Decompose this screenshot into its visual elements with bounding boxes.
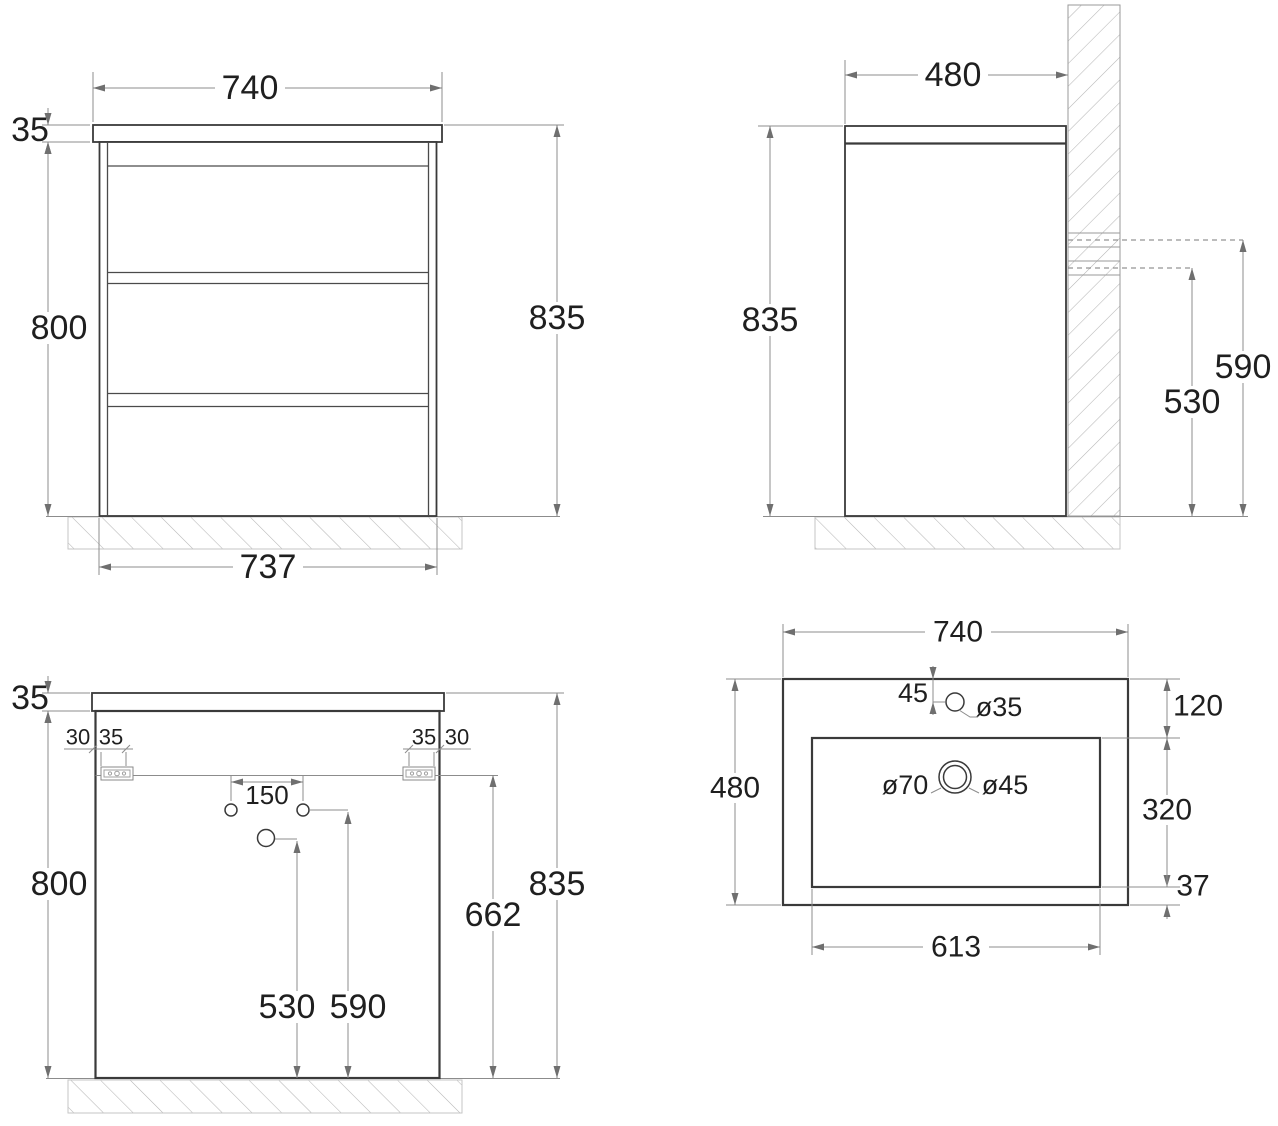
side-dim-drain-height: 530 bbox=[1159, 268, 1225, 516]
back-dim-30-left-label: 30 bbox=[66, 725, 90, 750]
front-dim-width-top: 740 bbox=[93, 69, 442, 122]
side-cabinet-body bbox=[845, 126, 1066, 516]
top-dim-120-label: 120 bbox=[1173, 690, 1223, 723]
back-dim-bracket-height: 662 bbox=[460, 775, 526, 1078]
side-floor-hatch bbox=[815, 517, 1120, 549]
front-view: 740 35 800 835 737 bbox=[11, 69, 590, 586]
front-cabinet-body bbox=[100, 142, 437, 516]
supply-hole-right bbox=[297, 804, 309, 816]
top-dim-740-label: 740 bbox=[933, 616, 983, 649]
side-dim-total-height: 835 bbox=[737, 126, 843, 516]
front-countertop bbox=[93, 125, 442, 142]
back-floor-hatch bbox=[68, 1080, 462, 1113]
wall-bracket-right bbox=[403, 767, 435, 780]
front-dim-countertop-thickness: 35 bbox=[11, 108, 90, 159]
front-dim-35-label: 35 bbox=[11, 111, 49, 149]
side-dim-supply-height: 590 bbox=[1210, 240, 1276, 516]
back-dim-530-label: 530 bbox=[259, 988, 316, 1026]
back-dim-countertop-thickness: 35 bbox=[11, 676, 90, 728]
side-view: 480 835 530 590 bbox=[737, 5, 1276, 549]
back-dim-total-height: 835 bbox=[446, 693, 590, 1078]
front-dim-835-label: 835 bbox=[529, 299, 586, 337]
top-dim-depth: 480 bbox=[702, 679, 781, 905]
front-dim-body-height: 800 bbox=[26, 142, 92, 516]
faucet-hole bbox=[946, 693, 964, 711]
top-dim-45-label: 45 bbox=[898, 678, 928, 708]
back-dim-35-bracket-right-label: 35 bbox=[412, 725, 436, 750]
supply-hole-left bbox=[225, 804, 237, 816]
back-dim-30-right-label: 30 bbox=[445, 725, 469, 750]
top-dim-613-label: 613 bbox=[931, 931, 981, 964]
top-dim-d35-label: ø35 bbox=[976, 692, 1023, 722]
back-dim-662-label: 662 bbox=[465, 896, 522, 934]
back-view: 30 35 35 30 150 bbox=[11, 676, 590, 1113]
top-dim-d45-label: ø45 bbox=[982, 770, 1029, 800]
back-countertop bbox=[92, 693, 444, 711]
drain-hole bbox=[258, 830, 275, 847]
back-dim-35-label: 35 bbox=[11, 679, 49, 717]
top-dim-width: 740 bbox=[783, 616, 1128, 678]
front-dim-740-label: 740 bbox=[222, 69, 279, 107]
back-dim-590-label: 590 bbox=[330, 988, 387, 1026]
vanity-cabinet-drawing: 740 35 800 835 737 bbox=[0, 0, 1278, 1126]
side-dim-480-label: 480 bbox=[925, 56, 982, 94]
back-dim-body-height: 800 bbox=[26, 711, 92, 1078]
drain-inner-circle bbox=[944, 766, 967, 789]
side-dim-590-label: 590 bbox=[1215, 348, 1272, 386]
back-dim-800-label: 800 bbox=[31, 865, 88, 903]
front-floor-hatch bbox=[68, 517, 462, 549]
front-dim-total-height: 835 bbox=[444, 125, 590, 516]
side-dim-depth: 480 bbox=[845, 56, 1068, 124]
top-dim-320-label: 320 bbox=[1142, 794, 1192, 827]
back-dim-150-label: 150 bbox=[245, 780, 288, 810]
back-dim-35-bracket-left-label: 35 bbox=[99, 725, 123, 750]
top-dim-480-label: 480 bbox=[710, 772, 760, 805]
front-dim-737-label: 737 bbox=[240, 548, 297, 586]
side-dim-530-label: 530 bbox=[1164, 383, 1221, 421]
back-dim-835-label: 835 bbox=[529, 865, 586, 903]
side-dim-835-label: 835 bbox=[742, 301, 799, 339]
top-view: 740 480 45 ø35 ø70 ø45 bbox=[702, 616, 1223, 964]
top-dim-37-label: 37 bbox=[1176, 870, 1209, 903]
technical-drawing-page: 740 35 800 835 737 bbox=[0, 0, 1278, 1126]
front-dim-800-label: 800 bbox=[31, 309, 88, 347]
wall-bracket-left bbox=[101, 767, 133, 780]
top-dim-d70-label: ø70 bbox=[882, 770, 929, 800]
